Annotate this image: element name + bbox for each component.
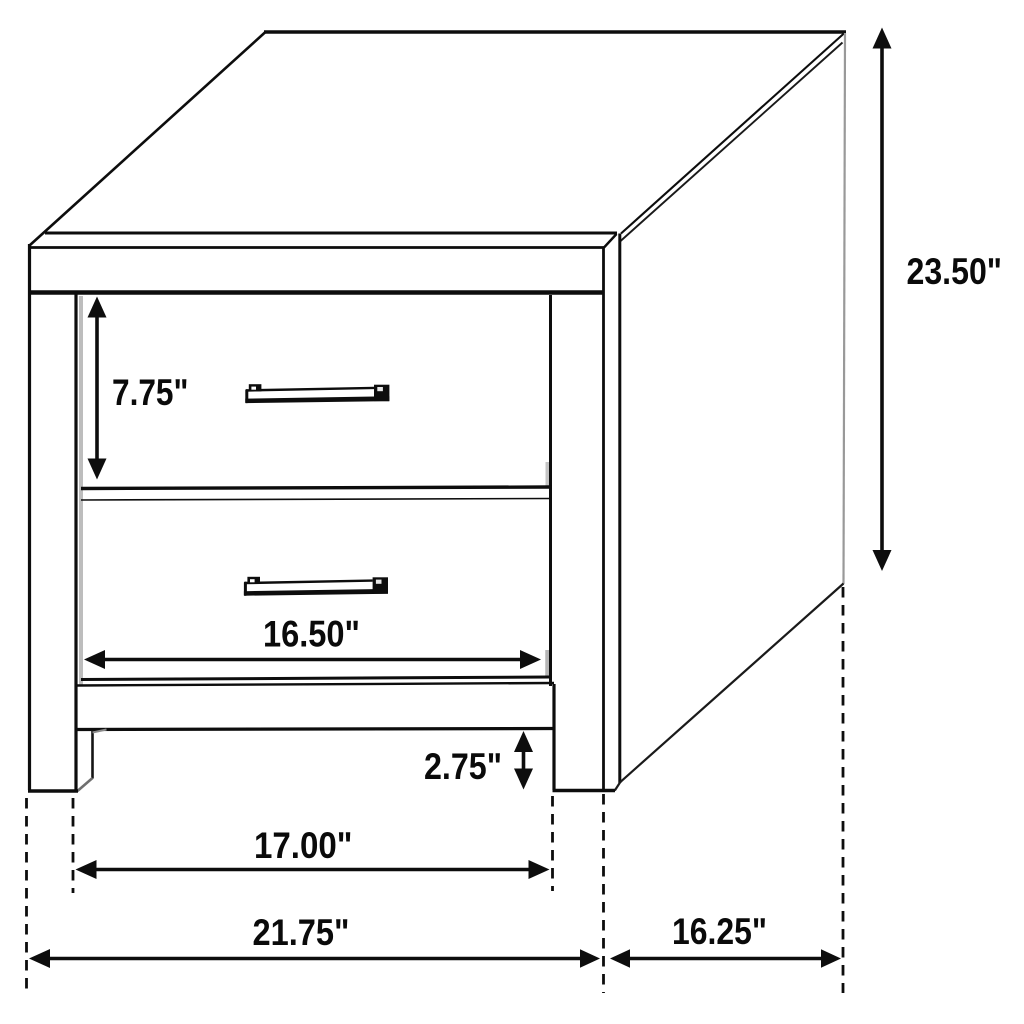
svg-text:21.75": 21.75" xyxy=(253,912,350,953)
svg-text:2.75": 2.75" xyxy=(424,746,502,787)
svg-text:7.75": 7.75" xyxy=(112,372,189,413)
svg-text:16.25": 16.25" xyxy=(672,911,767,952)
svg-text:16.50": 16.50" xyxy=(263,614,360,655)
svg-text:17.00": 17.00" xyxy=(254,825,353,866)
svg-text:23.50": 23.50" xyxy=(907,251,1003,292)
